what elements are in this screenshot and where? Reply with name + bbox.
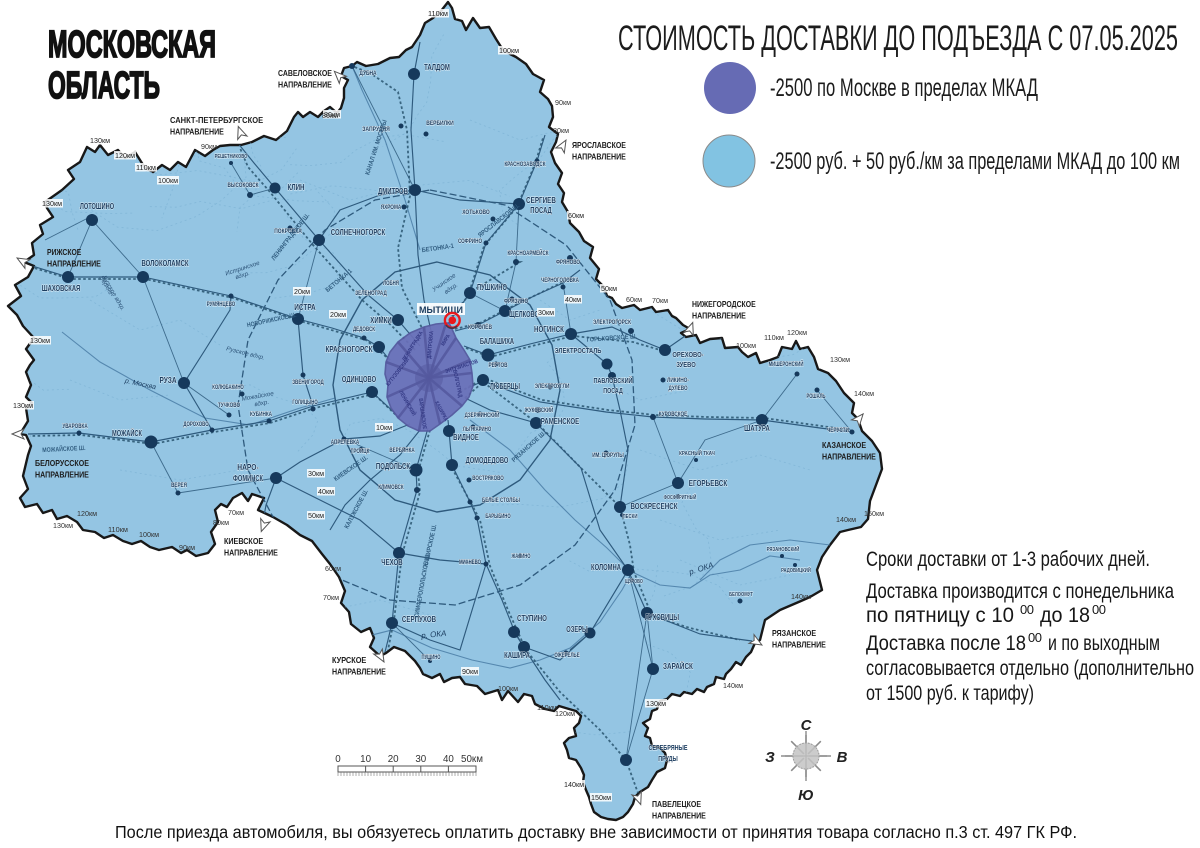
svg-text:00: 00 — [1092, 602, 1106, 617]
svg-text:ФОСФОРИТНЫЙ: ФОСФОРИТНЫЙ — [664, 493, 697, 501]
svg-text:ФРЯЗИНО: ФРЯЗИНО — [504, 298, 528, 305]
svg-text:МИХНЕВО: МИХНЕВО — [459, 560, 481, 566]
svg-text:ВЫСОКОВСК: ВЫСОКОВСК — [228, 182, 259, 189]
svg-text:150км: 150км — [591, 793, 611, 802]
svg-text:140км: 140км — [723, 681, 743, 690]
svg-text:МОСКОВСКАЯ: МОСКОВСКАЯ — [48, 24, 216, 66]
svg-text:ЯХРОМА: ЯХРОМА — [381, 204, 402, 211]
svg-text:140км: 140км — [836, 515, 856, 524]
svg-text:СЕРГИЕВ: СЕРГИЕВ — [526, 195, 556, 205]
svg-text:РЕШЕТНИКОВО: РЕШЕТНИКОВО — [215, 154, 248, 160]
svg-text:ЭЛЕКТРОСТАЛЬ: ЭЛЕКТРОСТАЛЬ — [555, 346, 602, 355]
svg-text:Сроки доставки от 1-3 рабочих: Сроки доставки от 1-3 рабочих дней. — [866, 548, 1150, 571]
svg-text:90км: 90км — [555, 98, 571, 107]
svg-text:100км: 100км — [158, 176, 178, 185]
svg-text:ЛОБНЯ: ЛОБНЯ — [383, 281, 399, 287]
svg-text:РОШАЛЬ: РОШАЛЬ — [807, 394, 826, 400]
svg-text:БАЛАШИХА: БАЛАШИХА — [480, 336, 514, 346]
svg-text:120км: 120км — [115, 151, 135, 160]
svg-text:КУРСКОЕ: КУРСКОЕ — [332, 656, 367, 665]
svg-text:30км: 30км — [538, 308, 554, 317]
svg-text:ЛЫТКАРИНО: ЛЫТКАРИНО — [463, 427, 492, 433]
svg-text:Доставка производится с понеде: Доставка производится с понедельника — [866, 580, 1174, 603]
svg-text:РЕУТОВ: РЕУТОВ — [489, 363, 508, 369]
svg-text:КОРОЛЁВ: КОРОЛЁВ — [468, 323, 492, 331]
svg-text:40км: 40км — [318, 487, 334, 496]
svg-text:ВЕРБИНКА: ВЕРБИНКА — [389, 448, 415, 454]
svg-text:140км: 140км — [791, 592, 811, 601]
svg-text:10: 10 — [360, 754, 371, 765]
svg-text:После приезда автомобиля, вы о: После приезда автомобиля, вы обязуетесь … — [115, 822, 1077, 842]
svg-text:БЕЛЫЕ СТОЛБЫ: БЕЛЫЕ СТОЛБЫ — [482, 498, 520, 504]
svg-text:ТУЧКОВО: ТУЧКОВО — [218, 403, 240, 409]
svg-text:100км: 100км — [498, 684, 518, 693]
svg-text:40: 40 — [443, 754, 454, 765]
svg-text:МИШЕРОНСКИЙ: МИШЕРОНСКИЙ — [769, 360, 804, 368]
svg-text:90км: 90км — [201, 142, 217, 151]
svg-text:120км: 120км — [77, 509, 97, 518]
svg-text:ПОСАД: ПОСАД — [530, 205, 551, 215]
svg-text:КАШИРА: КАШИРА — [504, 650, 530, 660]
svg-text:НАПРАВЛЕНИЕ: НАПРАВЛЕНИЕ — [572, 153, 626, 162]
svg-text:110км: 110км — [764, 333, 784, 342]
svg-text:140км: 140км — [564, 780, 584, 789]
svg-text:ЯРОСЛАВСКОЕ: ЯРОСЛАВСКОЕ — [572, 141, 626, 150]
svg-text:НАПРАВЛЕНИЕ: НАПРАВЛЕНИЕ — [332, 668, 386, 677]
svg-text:ЭЛЕКТРОГОРСК: ЭЛЕКТРОГОРСК — [593, 320, 631, 326]
svg-text:50км: 50км — [308, 511, 324, 520]
svg-text:КУРОВСКОЕ: КУРОВСКОЕ — [659, 412, 688, 418]
svg-text:от 1500 руб. к тарифу): от 1500 руб. к тарифу) — [866, 682, 1034, 705]
svg-text:КАЗАНСКОЕ: КАЗАНСКОЕ — [822, 441, 867, 450]
svg-text:ДОРОХОВО: ДОРОХОВО — [183, 422, 209, 428]
svg-text:ШАХОВСКАЯ: ШАХОВСКАЯ — [42, 283, 81, 293]
svg-text:00: 00 — [1028, 630, 1042, 645]
svg-text:110км: 110км — [428, 9, 448, 18]
svg-text:ДЕДОВСК: ДЕДОВСК — [353, 327, 375, 333]
svg-text:ФОМИНСК: ФОМИНСК — [233, 473, 264, 483]
svg-text:90км: 90км — [462, 667, 478, 676]
svg-text:20: 20 — [388, 754, 399, 765]
svg-text:00: 00 — [1020, 602, 1034, 617]
svg-text:КРАСНОАРМЕЙСК: КРАСНОАРМЕЙСК — [507, 249, 548, 257]
svg-text:СТОИМОСТЬ ДОСТАВКИ ДО ПОДЪЕЗДА: СТОИМОСТЬ ДОСТАВКИ ДО ПОДЪЕЗДА С 07.05.2… — [618, 19, 1178, 58]
svg-text:130км: 130км — [30, 336, 50, 345]
svg-text:до 18: до 18 — [1040, 604, 1090, 627]
svg-text:СОЛНЕЧНОГОРСК: СОЛНЕЧНОГОРСК — [331, 227, 386, 237]
svg-text:ТАЛДОМ: ТАЛДОМ — [424, 62, 450, 72]
svg-text:согласовывается отдельно (допо: согласовывается отдельно (дополнительно — [866, 657, 1194, 680]
svg-text:20км: 20км — [330, 310, 346, 319]
svg-text:ЛЮБЕРЦЫ: ЛЮБЕРЦЫ — [490, 381, 520, 391]
svg-text:НАПРАВЛЕНИЕ: НАПРАВЛЕНИЕ — [170, 128, 224, 137]
svg-text:ДМИТРОВ: ДМИТРОВ — [378, 186, 408, 196]
svg-text:и по выходным: и по выходным — [1048, 632, 1160, 655]
svg-text:ЧЕРУСТИ: ЧЕРУСТИ — [827, 428, 849, 434]
svg-text:60км: 60км — [325, 564, 341, 573]
svg-text:ОБЛАСТЬ: ОБЛАСТЬ — [48, 65, 160, 107]
svg-text:ХИМКИ: ХИМКИ — [370, 315, 391, 325]
svg-text:ХОТЬКОВО: ХОТЬКОВО — [462, 209, 490, 216]
svg-text:АПРЕЛЕВКА: АПРЕЛЕВКА — [331, 440, 360, 446]
svg-text:ЩУРОВО: ЩУРОВО — [625, 579, 643, 585]
svg-text:Ю: Ю — [798, 787, 814, 804]
svg-text:СОФРИНО: СОФРИНО — [458, 238, 482, 245]
svg-text:РУЗА: РУЗА — [159, 375, 176, 385]
svg-text:70км: 70км — [652, 296, 668, 305]
svg-text:ПУШКИНО: ПУШКИНО — [477, 282, 507, 292]
svg-text:ЗАРАЙСК: ЗАРАЙСК — [663, 660, 694, 671]
svg-text:З: З — [765, 749, 775, 766]
svg-text:ПРУДЫ: ПРУДЫ — [658, 754, 678, 763]
svg-text:С: С — [801, 717, 813, 734]
svg-text:110км: 110км — [108, 525, 128, 534]
svg-text:ПУЩИНО: ПУЩИНО — [422, 655, 441, 661]
svg-text:0: 0 — [335, 754, 341, 765]
svg-text:70км: 70км — [323, 593, 339, 602]
svg-text:110км: 110км — [136, 163, 156, 172]
svg-text:Доставка после 18: Доставка после 18 — [866, 632, 1026, 655]
svg-text:140км: 140км — [854, 389, 874, 398]
svg-text:-2500 по Москве в пределах МКА: -2500 по Москве в пределах МКАД — [770, 74, 1038, 102]
svg-text:90км: 90км — [179, 543, 195, 552]
svg-text:ПОДОЛЬСК: ПОДОЛЬСК — [376, 461, 411, 471]
svg-text:НАРО-: НАРО- — [237, 462, 259, 472]
svg-text:ПАВЕЛЕЦКОЕ: ПАВЕЛЕЦКОЕ — [652, 800, 701, 809]
svg-text:РУМЯНЦЕВО: РУМЯНЦЕВО — [207, 302, 236, 308]
svg-text:ЭЛЕКТРОУГЛИ: ЭЛЕКТРОУГЛИ — [535, 384, 570, 390]
svg-text:САНКТ-ПЕТЕРБУРГСКОЕ: САНКТ-ПЕТЕРБУРГСКОЕ — [170, 116, 264, 125]
svg-text:30: 30 — [415, 754, 426, 765]
svg-text:ВОСТРЯКОВО: ВОСТРЯКОВО — [472, 476, 504, 482]
svg-text:40км: 40км — [565, 295, 581, 304]
svg-text:по пятницу с 10: по пятницу с 10 — [866, 604, 1014, 627]
svg-text:НОГИНСК: НОГИНСК — [534, 324, 565, 334]
svg-text:-2500 руб. + 50 руб./км за пре: -2500 руб. + 50 руб./км за пределами МКА… — [770, 148, 1180, 175]
svg-text:50км: 50км — [461, 754, 483, 765]
svg-text:БЕЛОРУССКОЕ: БЕЛОРУССКОЕ — [35, 459, 89, 468]
svg-text:ВОЛОКОЛАМСК: ВОЛОКОЛАМСК — [141, 258, 189, 268]
svg-text:ШАТУРА: ШАТУРА — [744, 423, 770, 433]
svg-text:КРАСНОГОРСК: КРАСНОГОРСК — [325, 344, 373, 354]
svg-text:ПОСАД: ПОСАД — [603, 386, 623, 395]
svg-text:ОРЕХОВО-: ОРЕХОВО- — [672, 350, 704, 359]
svg-text:ФРЯНОВО: ФРЯНОВО — [556, 259, 580, 266]
svg-text:ИСТРА: ИСТРА — [294, 302, 315, 312]
svg-text:ВОСКРЕСЕНСК: ВОСКРЕСЕНСК — [630, 501, 678, 511]
svg-text:ЛУХОВИЦЫ: ЛУХОВИЦЫ — [645, 612, 679, 622]
svg-text:130км: 130км — [53, 521, 73, 530]
svg-text:30км: 30км — [308, 469, 324, 478]
svg-text:ЖУКОВСКИЙ: ЖУКОВСКИЙ — [524, 406, 553, 414]
svg-text:НАПРАВЛЕНИЕ: НАПРАВЛЕНИЕ — [822, 453, 876, 462]
svg-text:ДУЛЕВО: ДУЛЕВО — [669, 386, 688, 392]
svg-text:ПЕСКИ: ПЕСКИ — [623, 514, 638, 520]
svg-text:НАПРАВЛЕНИЕ: НАПРАВЛЕНИЕ — [278, 81, 332, 90]
svg-text:130км: 130км — [42, 199, 62, 208]
svg-text:ЕГОРЬЕВСК: ЕГОРЬЕВСК — [689, 478, 728, 488]
svg-text:РАМЕНСКОЕ: РАМЕНСКОЕ — [541, 416, 580, 426]
svg-text:80км: 80км — [322, 111, 338, 120]
svg-text:ТРОИЦК: ТРОИЦК — [351, 449, 370, 455]
svg-text:КЛИМОВСК: КЛИМОВСК — [378, 485, 404, 491]
svg-text:ЧЕХОВ: ЧЕХОВ — [381, 557, 402, 567]
svg-text:80км: 80км — [553, 126, 569, 135]
svg-text:130км: 130км — [646, 699, 666, 708]
svg-text:КУБИНКА: КУБИНКА — [250, 412, 273, 418]
svg-text:20км: 20км — [294, 287, 310, 296]
svg-text:НАПРАВЛЕНИЕ: НАПРАВЛЕНИЕ — [224, 549, 278, 558]
svg-text:70км: 70км — [228, 508, 244, 517]
svg-text:10км: 10км — [376, 423, 392, 432]
svg-text:НАПРАВЛЕНИЕ: НАПРАВЛЕНИЕ — [692, 312, 746, 321]
svg-text:КЛИН: КЛИН — [287, 182, 304, 192]
svg-text:МОЖАЙСК: МОЖАЙСК — [112, 427, 142, 438]
svg-text:ОЖЕРЕЛЬЕ: ОЖЕРЕЛЬЕ — [554, 653, 579, 659]
svg-text:100км: 100км — [499, 46, 519, 55]
svg-text:КРАСНОЗАВОДСК: КРАСНОЗАВОДСК — [504, 162, 545, 168]
svg-text:РЯЗАНСКОЕ: РЯЗАНСКОЕ — [772, 629, 817, 638]
svg-text:ИМ. ЦЮРУПЫ: ИМ. ЦЮРУПЫ — [592, 453, 624, 459]
svg-text:КОЛОМНА: КОЛОМНА — [591, 562, 621, 572]
svg-text:50км: 50км — [601, 284, 617, 293]
svg-text:БЕЛООМУТ: БЕЛООМУТ — [729, 592, 753, 598]
svg-text:НАПРАВЛЕНИЕ: НАПРАВЛЕНИЕ — [35, 471, 89, 480]
svg-text:110км: 110км — [537, 703, 557, 712]
svg-text:60км: 60км — [626, 295, 642, 304]
svg-text:НАПРАВЛЕНИЕ: НАПРАВЛЕНИЕ — [652, 812, 706, 821]
svg-text:КОЛЮБАКИНО: КОЛЮБАКИНО — [212, 385, 244, 391]
svg-text:100км: 100км — [139, 530, 159, 539]
svg-text:100км: 100км — [736, 341, 756, 350]
svg-text:ЗВЕНИГОРОД: ЗВЕНИГОРОД — [292, 380, 324, 386]
svg-text:ВЕРБИЛКИ: ВЕРБИЛКИ — [426, 120, 454, 127]
svg-text:ДУБНА: ДУБНА — [359, 70, 376, 77]
svg-text:КРАСНЫЙ ТКАЧ: КРАСНЫЙ ТКАЧ — [679, 449, 715, 457]
svg-text:РИЖСКОЕ: РИЖСКОЕ — [47, 248, 82, 257]
svg-text:ЛИКИНО-: ЛИКИНО- — [667, 378, 689, 384]
svg-text:ВИДНОЕ: ВИДНОЕ — [453, 432, 479, 442]
svg-text:ЧЕРНОГОЛОВКА: ЧЕРНОГОЛОВКА — [541, 278, 579, 284]
svg-text:СЕРЕБРЯНЫЕ: СЕРЕБРЯНЫЕ — [648, 743, 687, 752]
svg-text:80км: 80км — [213, 518, 229, 527]
svg-text:ЛОТОШИНО: ЛОТОШИНО — [80, 201, 115, 211]
svg-text:ОЗЕРЫ: ОЗЕРЫ — [566, 624, 587, 634]
svg-text:60км: 60км — [568, 211, 584, 220]
svg-text:150км: 150км — [864, 509, 884, 518]
svg-text:ВЕРЕЯ: ВЕРЕЯ — [171, 483, 187, 489]
svg-text:130км: 130км — [13, 401, 33, 410]
svg-text:ЗУЕВО: ЗУЕВО — [676, 360, 696, 369]
svg-text:ЗЕЛЕНОГРАД: ЗЕЛЕНОГРАД — [355, 291, 387, 297]
svg-text:БАРЫБИНО: БАРЫБИНО — [485, 514, 511, 520]
svg-text:120км: 120км — [787, 328, 807, 337]
svg-text:120км: 120км — [555, 709, 575, 718]
svg-text:ЩЕЛКОВО: ЩЕЛКОВО — [509, 309, 539, 319]
svg-text:ГОЛИЦЫНО: ГОЛИЦЫНО — [292, 400, 318, 406]
svg-text:РАДОВИЦКИЙ: РАДОВИЦКИЙ — [781, 566, 811, 574]
svg-text:СТУПИНО: СТУПИНО — [517, 613, 547, 623]
svg-text:130км: 130км — [830, 355, 850, 364]
svg-text:РЯЗАНОВСКИЙ: РЯЗАНОВСКИЙ — [767, 545, 800, 553]
svg-text:ПАВЛОВСКИЙ: ПАВЛОВСКИЙ — [593, 376, 632, 385]
svg-text:НАПРАВЛЕНИЕ: НАПРАВЛЕНИЕ — [772, 641, 826, 650]
svg-text:130км: 130км — [90, 136, 110, 145]
svg-text:УВАРОВКА: УВАРОВКА — [62, 424, 88, 430]
svg-text:ЖАЛИНО: ЖАЛИНО — [511, 554, 531, 560]
svg-text:ДЗЕРЖИНСКИЙ: ДЗЕРЖИНСКИЙ — [465, 411, 500, 419]
svg-text:В: В — [837, 749, 848, 766]
svg-text:КИЕВСКОЕ: КИЕВСКОЕ — [224, 537, 264, 546]
svg-text:ОДИНЦОВО: ОДИНЦОВО — [342, 374, 377, 384]
svg-text:САВЕЛОВСКОЕ: САВЕЛОВСКОЕ — [278, 69, 332, 78]
svg-text:НАПРАВЛЕНИЕ: НАПРАВЛЕНИЕ — [47, 260, 101, 269]
svg-text:НИЖЕГОРОДСКОЕ: НИЖЕГОРОДСКОЕ — [692, 300, 756, 309]
svg-text:ДОМОДЕДОВО: ДОМОДЕДОВО — [466, 455, 509, 465]
